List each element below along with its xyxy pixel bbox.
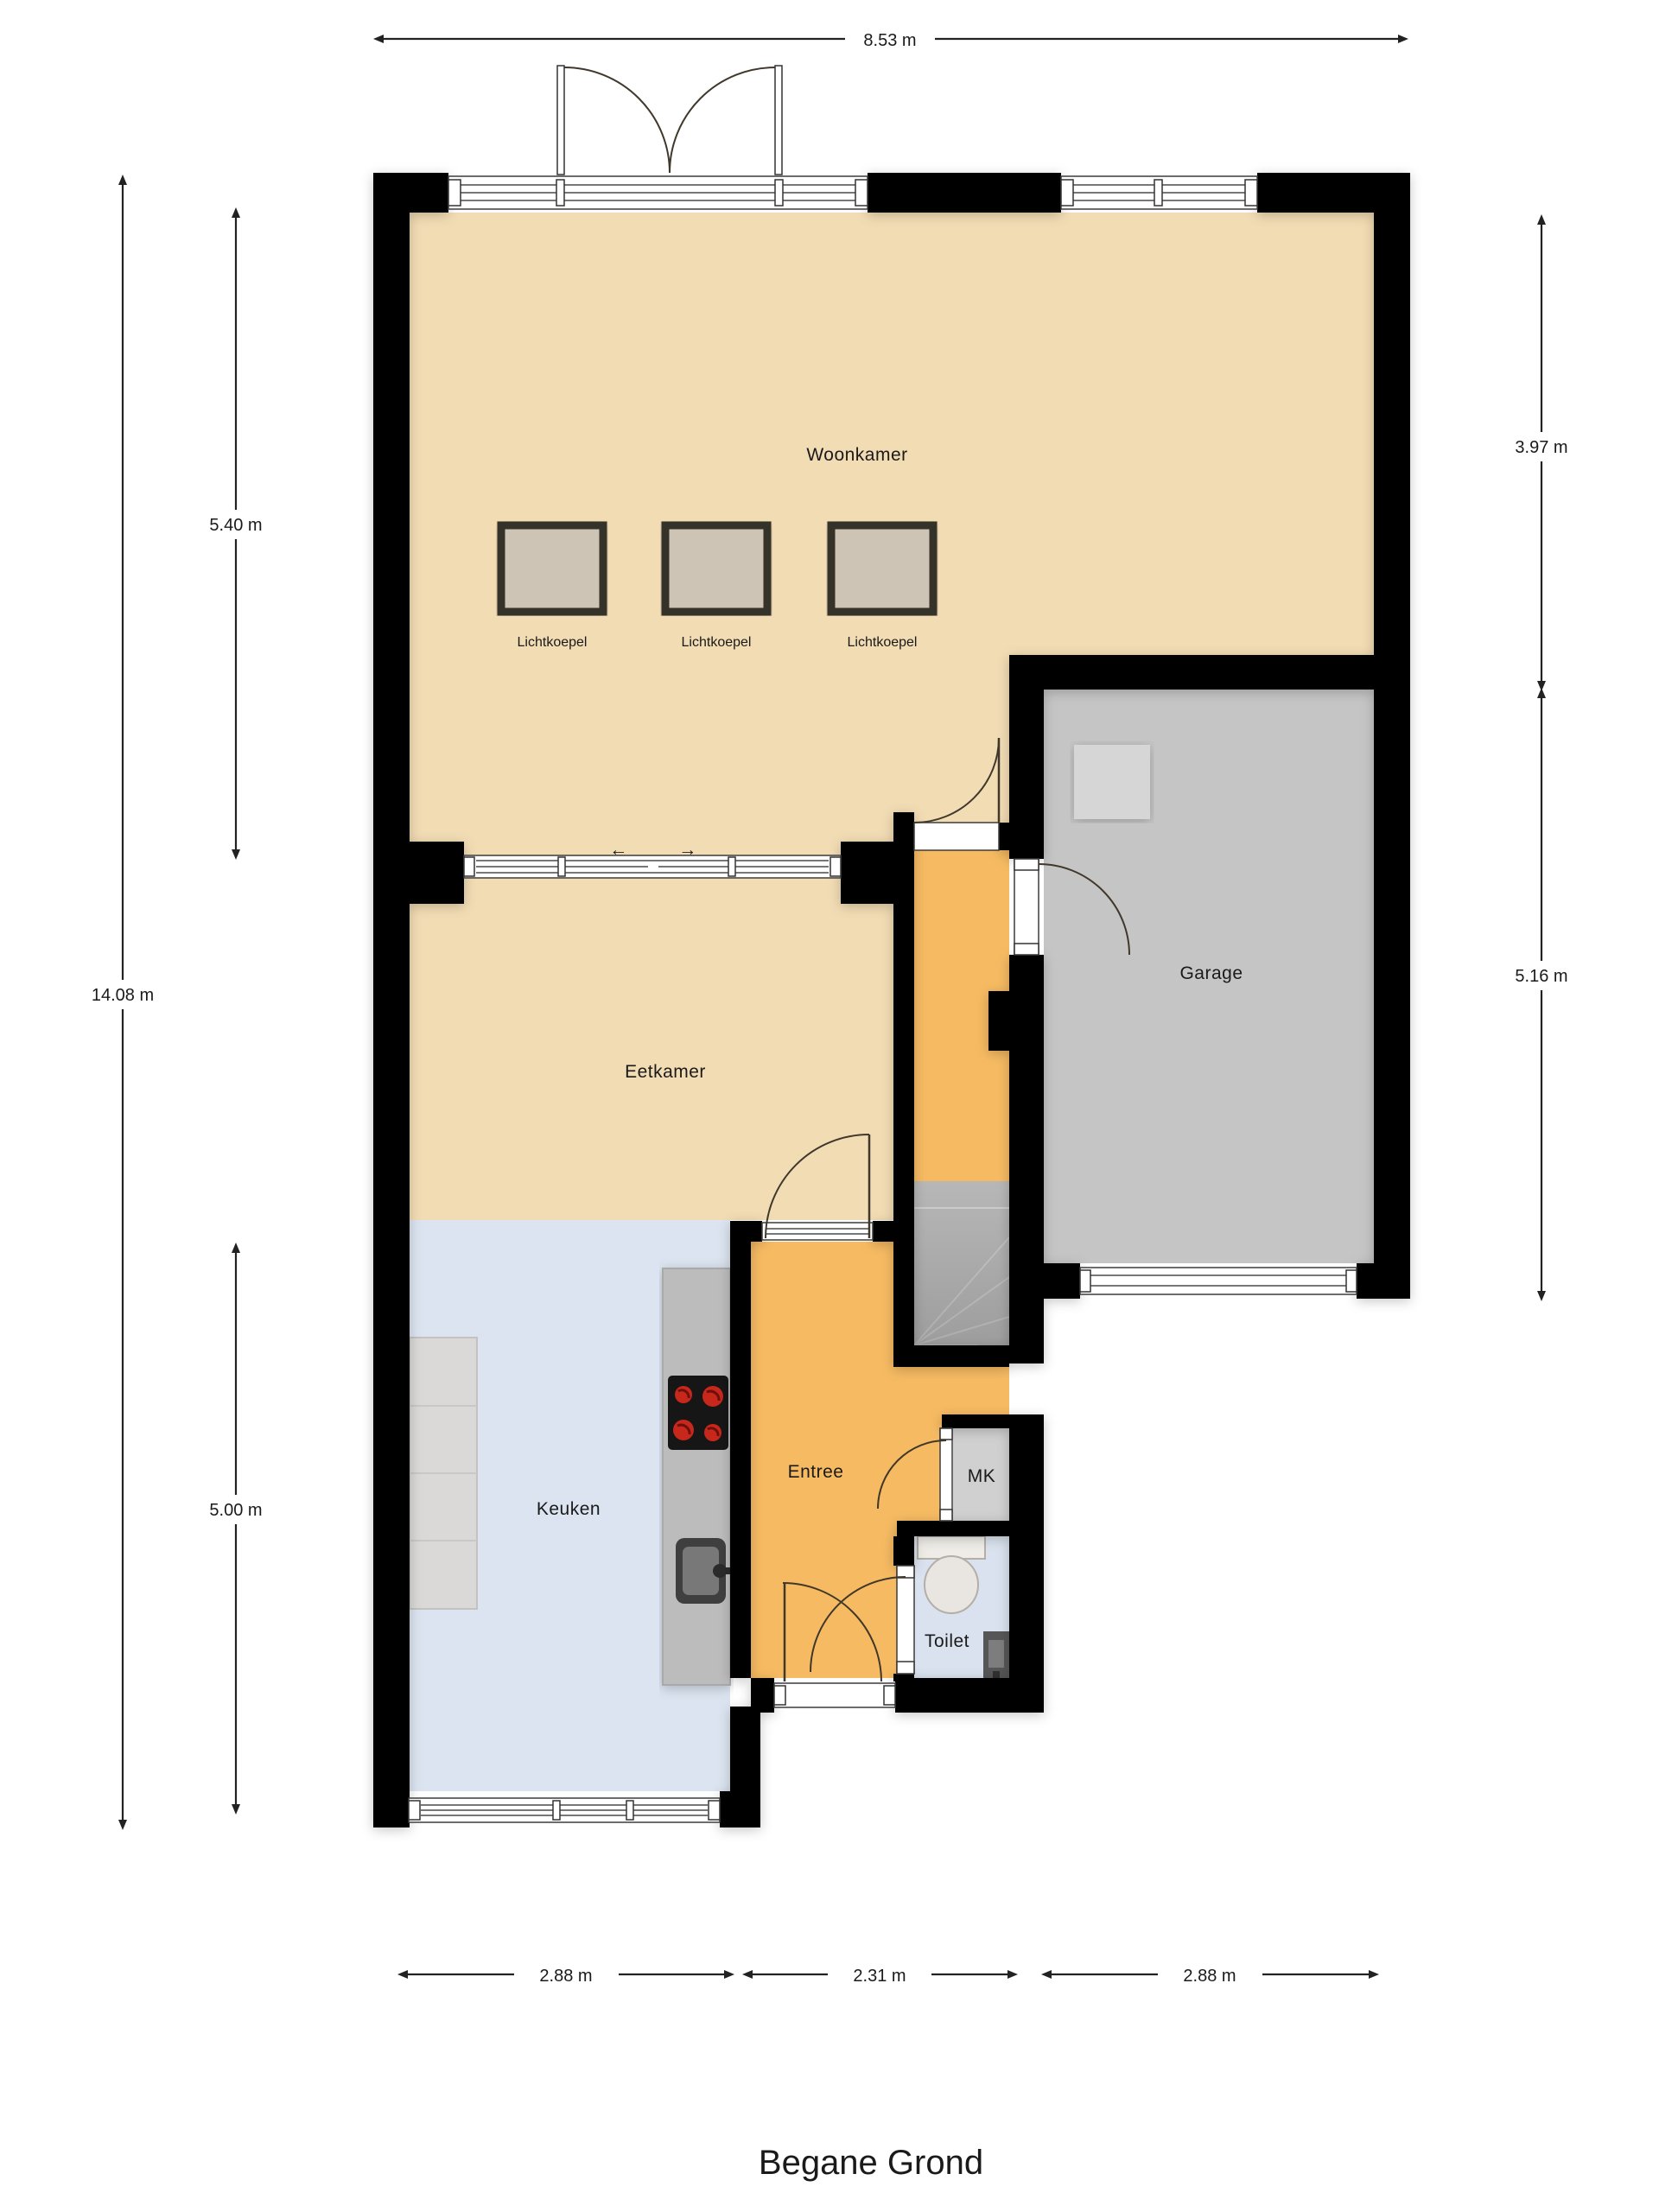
wall-eetkamer-entree-b xyxy=(873,1221,899,1242)
dim-bottom-garage: 2.88 m xyxy=(1183,1967,1236,1986)
room-eetkamer-floor xyxy=(410,850,893,1220)
room-keuken-label: Keuken xyxy=(537,1499,601,1519)
wall-garage-left-a xyxy=(1009,690,1044,859)
dim-left-lower: 5.00 m xyxy=(209,1501,262,1520)
skylight-2-label: Lichtkoepel xyxy=(682,635,752,650)
wall-toilet-left-b xyxy=(893,1674,914,1681)
dim-top-width: 8.53 m xyxy=(863,31,916,50)
wall-eetkamer-entree-a xyxy=(730,1221,762,1242)
dim-right-upper: 3.97 m xyxy=(1515,438,1567,457)
floorplan-page: Woonkamer Eetkamer Keuken Entree MK Toil… xyxy=(0,0,1659,2212)
wall-corridor-left xyxy=(893,812,914,1367)
garage-cabinet xyxy=(1074,745,1150,819)
wall-entree-bottom-b xyxy=(895,1678,1044,1713)
wall-mk-bottom xyxy=(897,1521,1009,1536)
dim-bottom-kitchen: 2.88 m xyxy=(539,1967,592,1986)
window-top-right xyxy=(1061,176,1257,209)
wall-toilet-left-a xyxy=(893,1536,914,1566)
stairs xyxy=(914,1181,1009,1345)
wall-right-mid xyxy=(1009,1299,1044,1363)
room-entree-floor-strip xyxy=(893,1414,942,1536)
wall-top-a xyxy=(373,173,448,213)
room-woonkamer-floor-lower xyxy=(410,655,1009,850)
wall-mk-top xyxy=(942,1414,1009,1428)
sliding-door xyxy=(464,855,841,878)
kitchen-counter xyxy=(663,1268,736,1685)
skylight-3 xyxy=(831,525,933,612)
floorplan-canvas: Woonkamer Eetkamer Keuken Entree MK Toil… xyxy=(0,0,1659,2212)
garage-door xyxy=(1080,1268,1357,1294)
window-kitchen xyxy=(409,1798,720,1822)
wall-garage-bottom-a xyxy=(1009,1263,1080,1299)
skylight-1 xyxy=(501,525,603,612)
room-entree-label: Entree xyxy=(788,1462,844,1482)
wall-slider-pillar-right xyxy=(841,842,893,904)
room-toilet-label: Toilet xyxy=(925,1631,969,1651)
room-eetkamer-label: Eetkamer xyxy=(625,1062,706,1082)
page-title: Begane Grond xyxy=(759,2144,983,2182)
wall-right-lower xyxy=(1009,1414,1044,1713)
wall-left xyxy=(373,173,410,1827)
dim-left-upper: 5.40 m xyxy=(209,516,262,535)
room-garage-label: Garage xyxy=(1179,963,1243,983)
french-door-left-leaf xyxy=(557,66,564,175)
wall-garage-bottom-b xyxy=(1357,1263,1410,1299)
wall-right-upper xyxy=(1374,173,1410,1299)
dim-right-lower: 5.16 m xyxy=(1515,967,1567,986)
skylight-3-label: Lichtkoepel xyxy=(848,635,918,650)
wall-garage-left-b xyxy=(1009,955,1044,1263)
washbasin-icon xyxy=(983,1631,1009,1680)
slide-right-arrow-icon: → xyxy=(678,840,697,860)
kitchen-cabinet xyxy=(410,1338,477,1609)
wall-kitchen-entree xyxy=(730,1221,751,1678)
stove-icon xyxy=(668,1376,728,1450)
slide-left-arrow-icon: ← xyxy=(609,840,628,860)
room-woonkamer-label: Woonkamer xyxy=(806,445,907,465)
wall-stairs-bottom xyxy=(893,1345,1009,1367)
french-doors xyxy=(557,66,782,175)
wall-top-b xyxy=(868,173,1061,213)
french-door-right-leaf xyxy=(775,66,782,175)
wall-corridor-door-jamb xyxy=(999,823,1009,850)
room-mk-label: MK xyxy=(968,1466,996,1486)
room-entree-floor-right xyxy=(893,1367,1009,1414)
wall-kitchen-bottom-a xyxy=(373,1791,409,1827)
wall-garage-top xyxy=(1009,655,1410,690)
wall-slider-pillar-left xyxy=(408,842,464,904)
dim-bottom-entree: 2.31 m xyxy=(853,1967,906,1986)
wall-corridor-pillar xyxy=(988,991,1009,1051)
dim-left-total: 14.08 m xyxy=(92,986,154,1005)
room-entree-floor xyxy=(751,1242,897,1678)
skylight-1-label: Lichtkoepel xyxy=(518,635,588,650)
window-top-left xyxy=(448,176,868,209)
skylight-2 xyxy=(665,525,767,612)
wall-kitchen-bottom-b xyxy=(720,1791,760,1827)
